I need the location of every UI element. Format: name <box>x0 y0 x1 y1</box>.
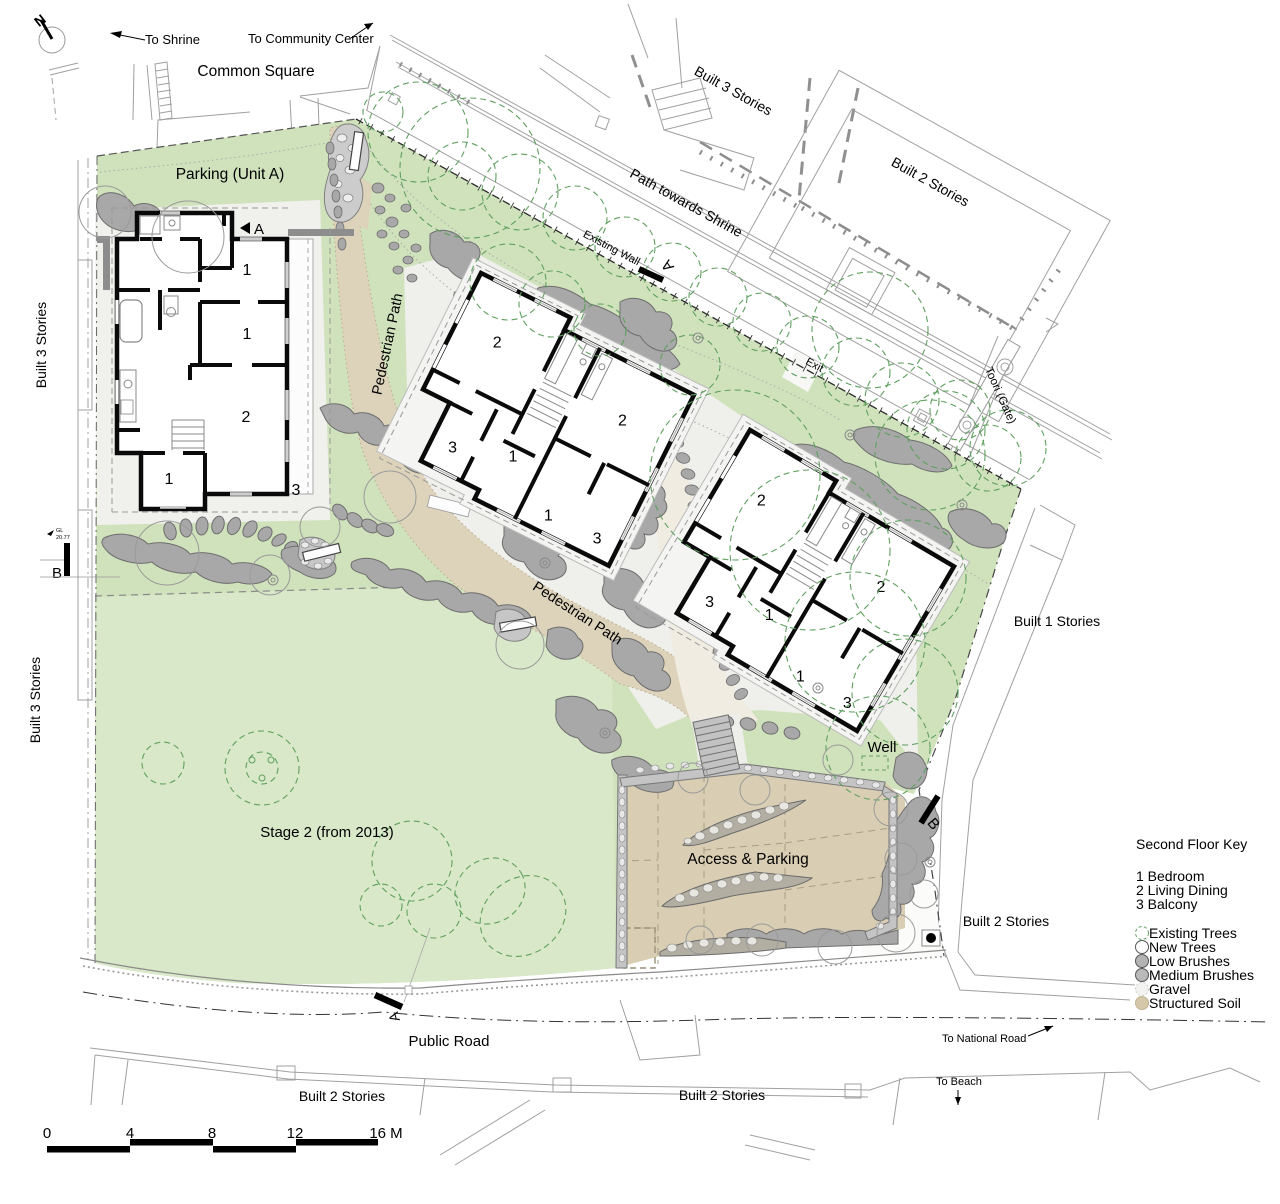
svg-text:1: 1 <box>796 669 805 686</box>
svg-text:20.77: 20.77 <box>56 535 70 541</box>
svg-text:1: 1 <box>243 262 252 279</box>
svg-text:Built 2 Stories: Built 2 Stories <box>679 1087 765 1103</box>
svg-text:Second Floor Key: Second Floor Key <box>1136 836 1247 852</box>
svg-text:2: 2 <box>876 579 885 596</box>
svg-text:B: B <box>52 565 62 582</box>
svg-text:To Beach: To Beach <box>936 1076 982 1088</box>
svg-text:Stage 2 (from 2013): Stage 2 (from 2013) <box>260 824 393 841</box>
svg-text:2: 2 <box>493 334 502 351</box>
svg-text:Built 1 Stories: Built 1 Stories <box>1014 613 1100 629</box>
svg-text:Structured Soil: Structured Soil <box>1149 995 1241 1011</box>
svg-text:0: 0 <box>43 1125 51 1142</box>
svg-text:To National Road: To National Road <box>942 1033 1026 1045</box>
svg-text:Built 2 Stories: Built 2 Stories <box>299 1088 385 1104</box>
svg-text:2: 2 <box>242 409 251 426</box>
svg-text:3: 3 <box>705 594 714 611</box>
svg-text:3 Balcony: 3 Balcony <box>1136 896 1197 912</box>
svg-text:Public Road: Public Road <box>409 1033 490 1050</box>
svg-text:1: 1 <box>243 326 252 343</box>
svg-text:Access & Parking: Access & Parking <box>687 851 808 868</box>
svg-text:3: 3 <box>448 440 457 457</box>
svg-text:2: 2 <box>757 492 766 509</box>
svg-text:Built 3 Stories: Built 3 Stories <box>33 302 49 388</box>
svg-text:Built 3 Stories: Built 3 Stories <box>27 657 43 743</box>
svg-text:1: 1 <box>544 507 553 524</box>
svg-text:1: 1 <box>765 607 774 624</box>
svg-text:1: 1 <box>165 471 174 488</box>
svg-text:2: 2 <box>618 413 627 430</box>
svg-text:Common Square: Common Square <box>197 63 314 80</box>
svg-text:Parking (Unit A): Parking (Unit A) <box>176 166 285 183</box>
svg-text:1: 1 <box>509 448 518 465</box>
svg-text:To Community Center: To Community Center <box>248 31 374 46</box>
svg-text:A: A <box>254 221 264 238</box>
svg-text:GL: GL <box>56 528 63 534</box>
svg-text:Well: Well <box>868 739 897 756</box>
svg-text:To Shrine: To Shrine <box>145 32 200 47</box>
svg-text:Built 2 Stories: Built 2 Stories <box>963 913 1049 929</box>
svg-text:3: 3 <box>593 531 602 548</box>
svg-text:3: 3 <box>292 482 301 499</box>
